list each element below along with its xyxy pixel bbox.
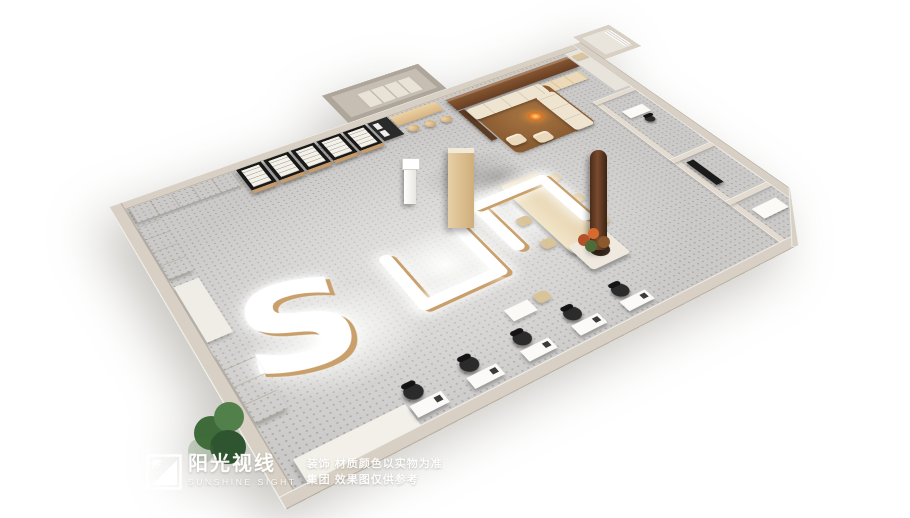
disclaimer-line-1: 装饰 材质颜色以实物为准 — [307, 456, 443, 472]
chamfer-wall — [788, 186, 806, 249]
disclaimer-line-2: 集团 效果图仅供参考 — [307, 472, 443, 488]
display-tower — [448, 148, 474, 228]
flower-arrangement — [576, 226, 616, 254]
brand-name-en: SUNSHINE SIGHT — [188, 477, 297, 487]
brand-name-cn: 阳光视线 — [188, 454, 297, 474]
wing-window-blinds — [604, 30, 630, 46]
store-3d-scene: S — [0, 0, 910, 506]
watermark: 阳光视线 SUNSHINE SIGHT 装饰 材质颜色以实物为准 集团 效果图仅… — [146, 454, 443, 490]
sign-pedestal — [404, 158, 416, 204]
watermark-disclaimer: 装饰 材质颜色以实物为准 集团 效果图仅供参考 — [307, 454, 443, 488]
render-canvas: S — [0, 0, 910, 506]
watermark-brand: 阳光视线 SUNSHINE SIGHT — [188, 454, 297, 487]
sunburst-square-logo-icon — [146, 454, 182, 490]
